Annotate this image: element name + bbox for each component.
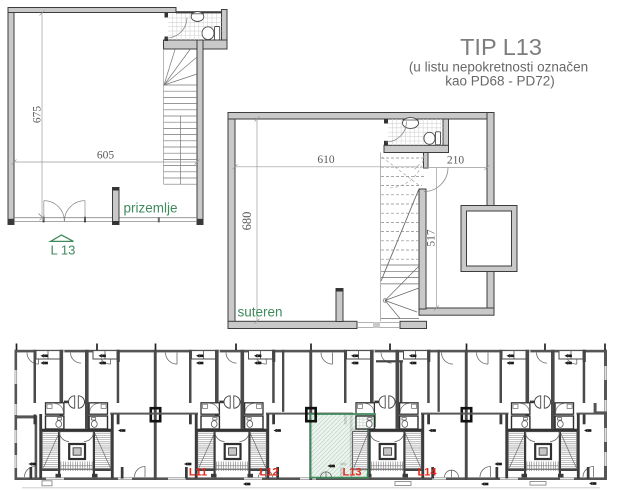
svg-text:610: 610 [317, 154, 335, 166]
svg-text:210: 210 [447, 155, 465, 167]
svg-text:675: 675 [32, 106, 44, 124]
svg-text:suteren: suteren [238, 305, 283, 320]
svg-text:L12: L12 [260, 467, 279, 479]
svg-text:680: 680 [240, 212, 254, 231]
svg-text:L14: L14 [418, 467, 438, 479]
svg-text:605: 605 [97, 150, 115, 162]
svg-text:kao PD68 - PD72): kao PD68 - PD72) [445, 74, 555, 89]
svg-text:prizemlje: prizemlje [124, 201, 178, 216]
svg-text:(u listu nepokretnosti označen: (u listu nepokretnosti označen [409, 59, 588, 74]
svg-text:L11: L11 [189, 467, 207, 479]
svg-text:L13: L13 [343, 467, 362, 479]
svg-text:TIP L13: TIP L13 [460, 34, 542, 60]
svg-text:517: 517 [426, 229, 438, 247]
svg-text:L 13: L 13 [51, 243, 76, 258]
